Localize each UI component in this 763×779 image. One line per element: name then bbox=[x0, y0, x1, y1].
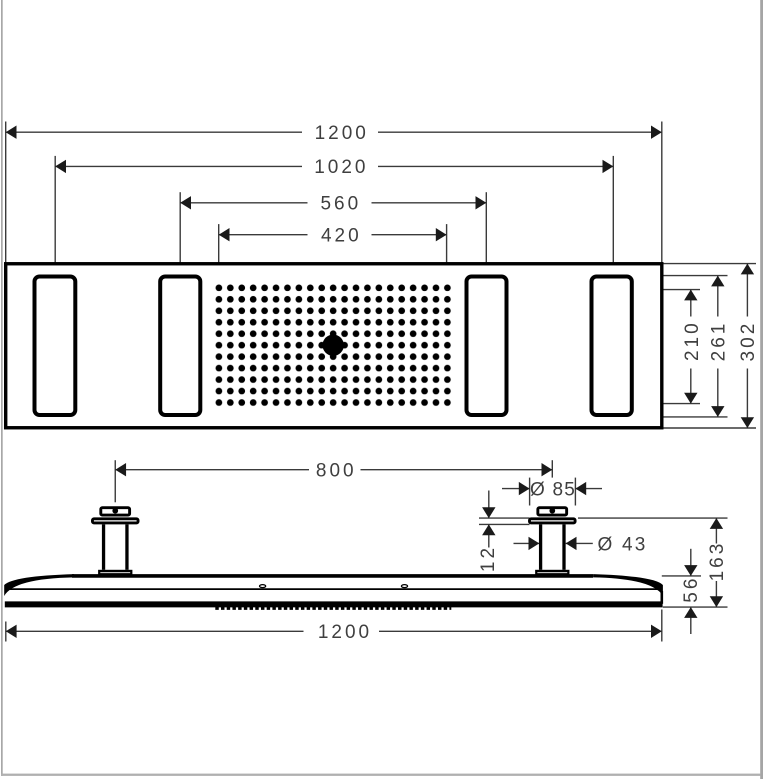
svg-text:261: 261 bbox=[708, 321, 729, 362]
svg-text:163: 163 bbox=[707, 541, 728, 582]
svg-text:Ø 43: Ø 43 bbox=[598, 534, 648, 555]
svg-text:12: 12 bbox=[478, 545, 499, 572]
svg-text:Ø 85: Ø 85 bbox=[530, 480, 576, 501]
svg-text:800: 800 bbox=[316, 460, 357, 481]
svg-text:1200: 1200 bbox=[315, 123, 369, 144]
svg-text:420: 420 bbox=[321, 225, 362, 246]
svg-text:1020: 1020 bbox=[314, 157, 368, 178]
svg-text:1200: 1200 bbox=[318, 622, 372, 643]
svg-text:210: 210 bbox=[682, 320, 703, 361]
svg-text:302: 302 bbox=[738, 321, 759, 362]
svg-text:560: 560 bbox=[320, 194, 361, 215]
svg-text:56: 56 bbox=[681, 576, 702, 603]
